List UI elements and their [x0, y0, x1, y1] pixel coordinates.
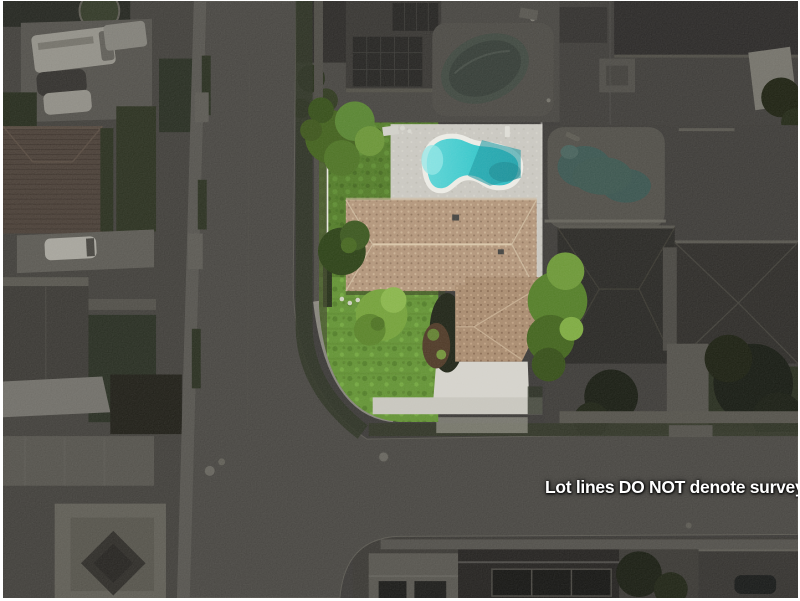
aerial-photo: Lot lines DO NOT denote survey [0, 0, 800, 601]
lot-lines-disclaimer: Lot lines DO NOT denote survey [545, 477, 795, 498]
aerial-scene-graphic [3, 1, 798, 598]
aerial-lot-view: Lot lines DO NOT denote survey [0, 0, 800, 601]
photo-grain [3, 1, 798, 598]
